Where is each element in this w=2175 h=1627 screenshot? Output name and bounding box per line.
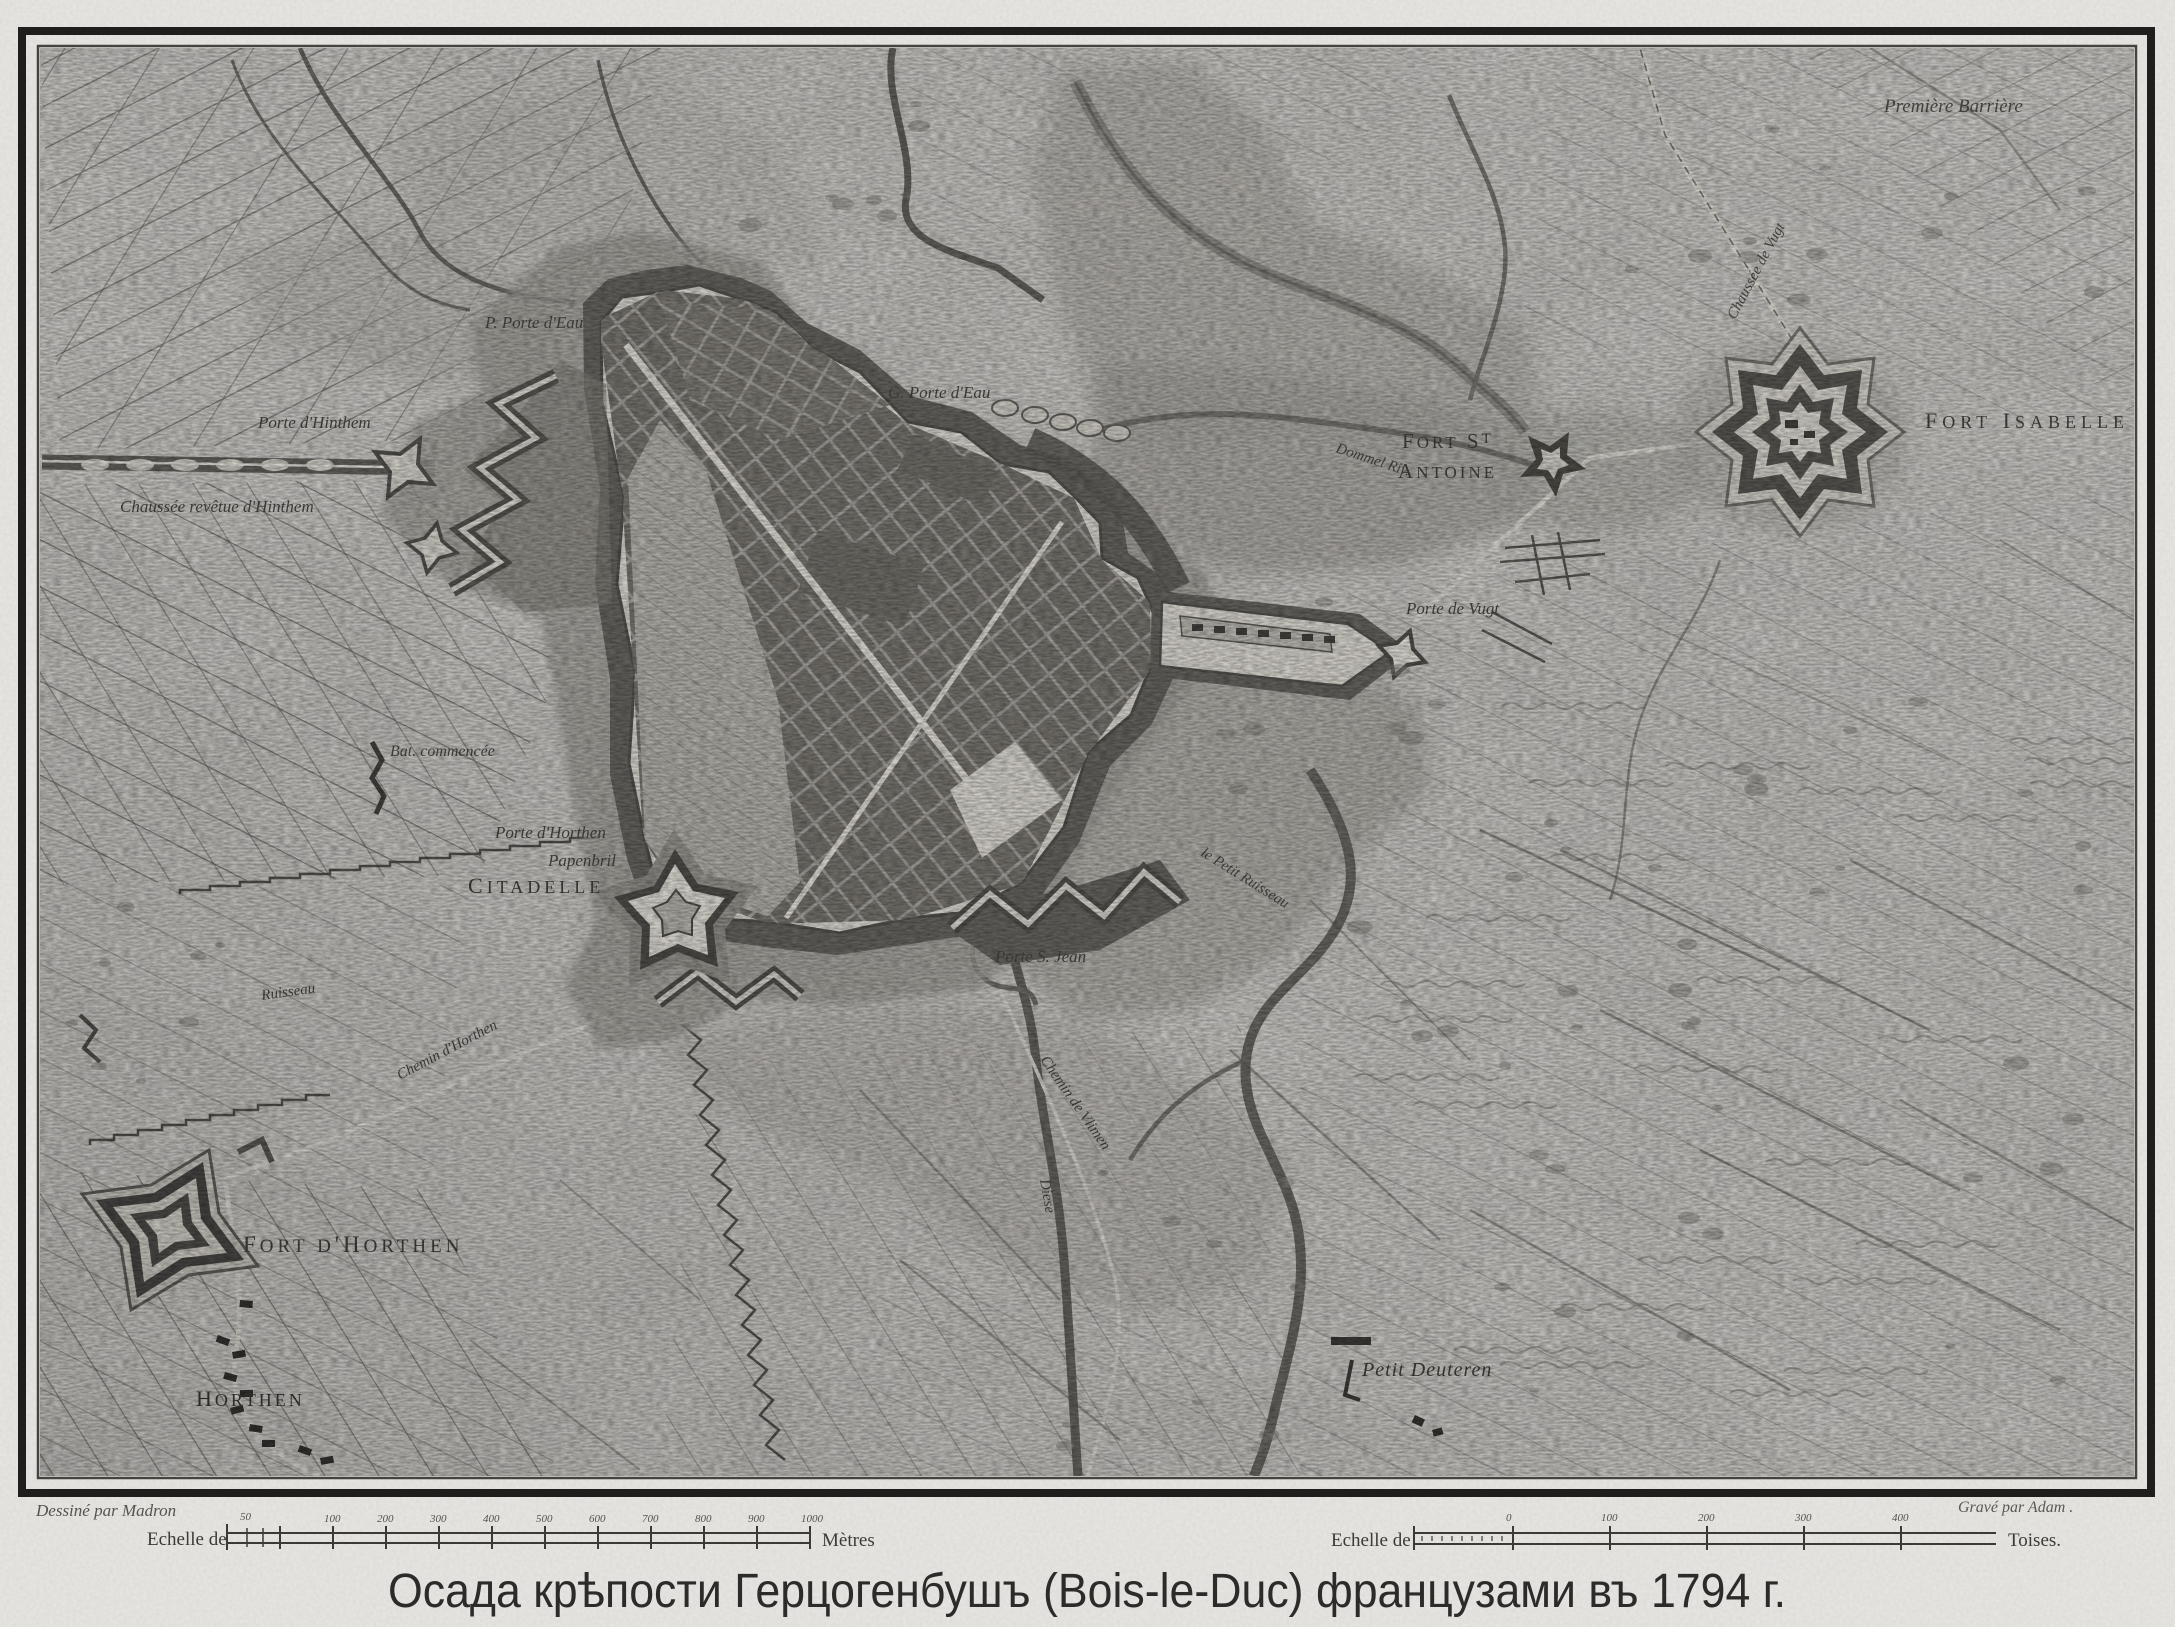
svg-text:Toises.: Toises. <box>2008 1530 2061 1551</box>
svg-text:700: 700 <box>642 1513 659 1525</box>
svg-text:300: 300 <box>429 1513 447 1525</box>
svg-text:Mètres: Mètres <box>822 1530 875 1551</box>
svg-text:100: 100 <box>324 1513 341 1525</box>
svg-text:800: 800 <box>695 1513 712 1525</box>
svg-text:Echelle de: Echelle de <box>1331 1530 1411 1551</box>
svg-text:100: 100 <box>1601 1512 1618 1524</box>
svg-text:200: 200 <box>1698 1512 1715 1524</box>
svg-text:900: 900 <box>748 1513 765 1525</box>
svg-text:Echelle de: Echelle de <box>147 1529 227 1550</box>
svg-text:0: 0 <box>1506 1512 1512 1524</box>
svg-text:500: 500 <box>536 1513 553 1525</box>
svg-text:1000: 1000 <box>801 1513 824 1525</box>
svg-text:400: 400 <box>483 1513 500 1525</box>
svg-text:200: 200 <box>377 1513 394 1525</box>
svg-text:600: 600 <box>589 1513 606 1525</box>
svg-text:Dessiné par Madron: Dessiné par Madron <box>35 1501 176 1520</box>
svg-text:400: 400 <box>1892 1512 1909 1524</box>
svg-text:50: 50 <box>240 1511 252 1523</box>
svg-text:Осада крѣпости Герцогенбушъ (B: Осада крѣпости Герцогенбушъ (Bois-le-Duc… <box>388 1565 1786 1618</box>
svg-text:300: 300 <box>1794 1512 1812 1524</box>
svg-text:Gravé par Adam .: Gravé par Adam . <box>1958 1499 2073 1516</box>
